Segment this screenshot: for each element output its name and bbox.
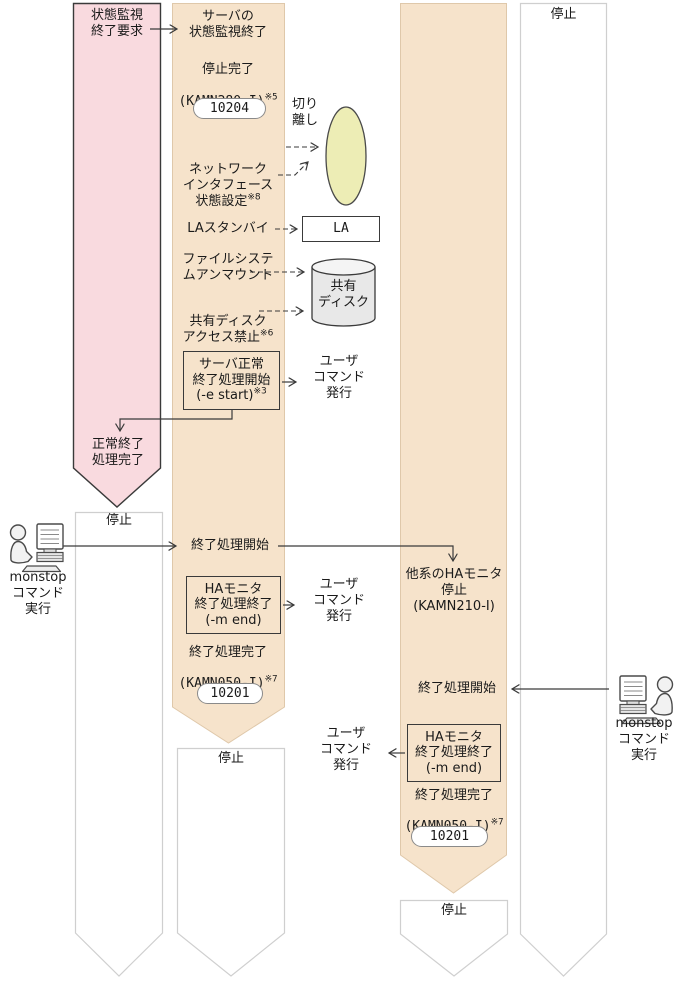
note-6: ※6 xyxy=(260,329,273,339)
user-command-label-1: ユーザ コマンド 発行 xyxy=(300,354,378,402)
fs-unmount-label: ファイルシステ ムアンマウント xyxy=(172,252,284,284)
stop-complete-label: 停止完了 xyxy=(172,62,284,78)
lane2-stopped-white xyxy=(178,749,285,977)
shutdown-sequence-diagram: 状態監視 終了要求 正常終了 処理完了 停止 monstop コマンド 実行 サ… xyxy=(0,0,683,984)
network-interface-label: ネットワーク インタフェース 状態設定※8 xyxy=(172,146,284,210)
operator-computer-icon-left xyxy=(11,524,64,572)
ha-monitor-end-box-1: HAモニタ 終了処理終了 (-m end) xyxy=(186,576,281,634)
shutdown-start-label-2: 終了処理開始 xyxy=(405,681,509,697)
lane2-stopped-label: 停止 xyxy=(177,751,285,767)
note-7a: ※7 xyxy=(265,675,278,685)
monstop-left-label: monstop コマンド 実行 xyxy=(4,570,72,618)
user-command-label-3: ユーザ コマンド 発行 xyxy=(310,726,382,774)
lane1-stopped-white xyxy=(76,513,163,977)
disk-access-forbid-label: 共有ディスク アクセス禁止※6 xyxy=(172,298,284,346)
remote-ha-stop-label: 他系のHAモニタ 停止 (KAMN210-I) xyxy=(398,567,510,615)
detach-label: 切り 離し xyxy=(285,97,325,129)
note-3: ※3 xyxy=(253,387,266,397)
lane1-monitoring-pink xyxy=(74,4,161,508)
badge-10201-2: 10201 xyxy=(411,826,488,847)
lane3-stopped-label: 停止 xyxy=(400,903,508,919)
server-normal-end-box: サーバ正常 終了処理開始 (-e start)※3 xyxy=(183,351,280,410)
la-standby-label: LAスタンバイ xyxy=(172,221,284,237)
end-complete-label-1: 終了処理完了 xyxy=(172,645,284,661)
note-5: ※5 xyxy=(265,93,278,103)
detached-resource-ellipse xyxy=(326,107,366,205)
shutdown-start-label-1: 終了処理開始 xyxy=(182,538,278,554)
monitor-end-request-label: 状態監視 終了要求 xyxy=(78,8,156,40)
lane1-stopped-label: 停止 xyxy=(75,513,163,529)
shared-disk-label: 共有 ディスク xyxy=(313,279,374,311)
badge-10204: 10204 xyxy=(193,98,266,119)
lane4-stopped-label: 停止 xyxy=(520,7,607,23)
diagram-shapes xyxy=(0,0,683,984)
normal-end-complete-label: 正常終了 処理完了 xyxy=(86,437,150,469)
lane4-stopped-white xyxy=(521,4,607,977)
note-7b: ※7 xyxy=(491,818,504,828)
end-complete-label-2: 終了処理完了 xyxy=(398,788,510,804)
monstop-right-label: monstop コマンド 実行 xyxy=(610,716,678,764)
server-monitor-end-label: サーバの 状態監視終了 xyxy=(172,9,284,41)
shared-disk-cylinder-top xyxy=(312,259,375,275)
ha-monitor-end-box-2: HAモニタ 終了処理終了 (-m end) xyxy=(407,724,501,782)
badge-10201-1: 10201 xyxy=(197,683,263,704)
note-8: ※8 xyxy=(247,193,260,203)
la-box: LA xyxy=(302,216,380,242)
user-command-label-2: ユーザ コマンド 発行 xyxy=(300,577,378,625)
